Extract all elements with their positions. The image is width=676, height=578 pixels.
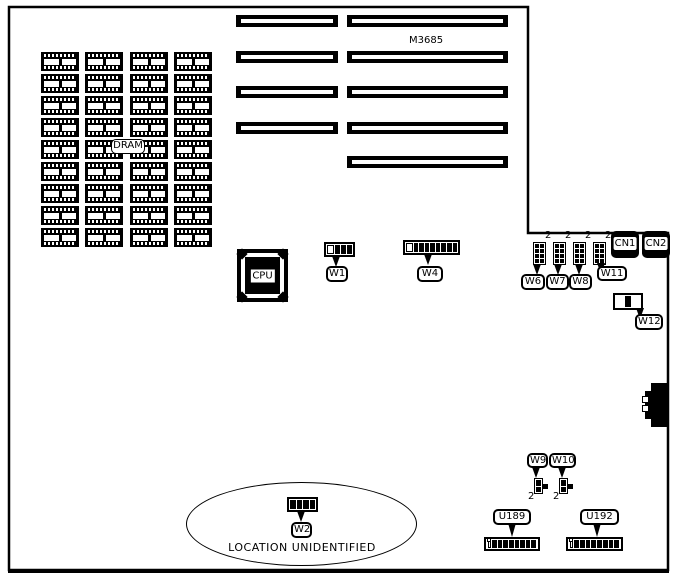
dip-segment [597, 540, 602, 548]
dip-segment [591, 540, 596, 548]
w12-label: W12 [635, 314, 663, 330]
dram-chip [174, 96, 212, 115]
w10-pin2-label: 2 [553, 491, 559, 502]
jumper-w1 [324, 242, 355, 257]
expansion-slot [236, 15, 338, 27]
dram-chip [130, 118, 168, 137]
jumper-pin [535, 254, 539, 258]
dip-segment [603, 540, 608, 548]
jumper-pin [575, 244, 579, 248]
jumper-pin [536, 480, 541, 486]
dram-chip [130, 206, 168, 225]
dip-segment [531, 540, 536, 548]
jumper-pin-open [327, 245, 334, 254]
jumper-pin [580, 254, 584, 258]
dram-chip [85, 228, 123, 247]
jumper-pin [580, 249, 584, 253]
cn2-label: CN2 [645, 237, 668, 250]
jumper-w8 [573, 242, 586, 265]
jumper-pin [341, 245, 346, 254]
expansion-slot [347, 156, 508, 168]
w2-pointer [297, 511, 305, 522]
jumper-pin [575, 249, 579, 253]
dip-segment [580, 540, 585, 548]
jumper-pin [453, 243, 458, 252]
dip-segment [526, 540, 531, 548]
expansion-slot [347, 86, 508, 98]
jumper-pin [595, 254, 599, 258]
cpu-label: CPU [250, 269, 274, 282]
jumper-pin [441, 243, 446, 252]
connector-cn1: CN1 [611, 231, 639, 258]
u192-label: U192 [580, 509, 619, 525]
jumper-w6 [533, 242, 546, 265]
dram-label: DRAM [111, 139, 145, 154]
expansion-slot [236, 51, 338, 63]
cpu-socket: CPU [237, 249, 288, 302]
u189-pin1-marker [487, 538, 491, 542]
dram-chip [85, 118, 123, 137]
jumper-pin [425, 243, 430, 252]
u189-pointer [508, 523, 516, 537]
motherboard-diagram: DRAM M3685 CPU W1 W4 2 2 2 2 W6 W7 W8 W1… [0, 0, 676, 578]
dip-segment [586, 540, 591, 548]
w9-side-pin [543, 484, 548, 489]
w11-label: W11 [597, 266, 627, 281]
jumper-pin [540, 249, 544, 253]
w8-pin2-label: 2 [585, 230, 591, 241]
dram-chip [130, 228, 168, 247]
dram-chip [130, 162, 168, 181]
jumper-pin [447, 243, 452, 252]
dip-segment [520, 540, 525, 548]
jumper-pin [600, 254, 604, 258]
dip-segment [614, 540, 619, 548]
jumper-pin [575, 259, 579, 263]
jumper-pin [290, 500, 296, 509]
jumper-pin [595, 249, 599, 253]
jumper-pin [595, 244, 599, 248]
u192-pointer [593, 523, 601, 537]
jumper-pin [540, 244, 544, 248]
expansion-slot [236, 86, 338, 98]
jumper-pin [555, 259, 559, 263]
jumper-pin [303, 500, 309, 509]
jumper-pin [536, 487, 541, 493]
u192-pin1-marker [569, 538, 573, 542]
dip-segment [492, 540, 497, 548]
w9-label: W9 [527, 453, 548, 468]
dram-chip [130, 52, 168, 71]
w2-label: W2 [291, 522, 312, 538]
dram-chip [130, 74, 168, 93]
jumper-pin [436, 243, 441, 252]
jumper-pin [575, 254, 579, 258]
w10-side-pin [568, 484, 573, 489]
dram-chip [174, 52, 212, 71]
dram-chip [85, 184, 123, 203]
jumper-pin [555, 244, 559, 248]
dram-chip [174, 228, 212, 247]
dram-chip [85, 206, 123, 225]
jumper-pin [555, 249, 559, 253]
connector-cn2: CN2 [642, 231, 670, 258]
dram-chip [41, 162, 79, 181]
jumper-pin [600, 249, 604, 253]
location-unidentified-text: LOCATION UNIDENTIFIED [222, 541, 382, 554]
dram-chip [174, 162, 212, 181]
dram-chip [174, 206, 212, 225]
w8-label: W8 [569, 274, 592, 290]
dram-chip [85, 96, 123, 115]
chip-u192 [566, 537, 623, 551]
dram-chip [174, 140, 212, 159]
dram-chip [41, 96, 79, 115]
jumper-pin [540, 259, 544, 263]
jumper-w10 [559, 478, 568, 494]
dram-chip [41, 52, 79, 71]
dram-chip [41, 140, 79, 159]
jumper-w11 [593, 242, 606, 265]
jumper-w4 [403, 240, 460, 255]
dram-chip [174, 74, 212, 93]
w6-pin2-label: 2 [545, 230, 551, 241]
dip-segment [515, 540, 520, 548]
dram-chip [41, 118, 79, 137]
dram-chip [130, 184, 168, 203]
w4-pointer [424, 254, 432, 265]
jumper-pin [535, 259, 539, 263]
w9-pin2-label: 2 [528, 491, 534, 502]
keyboard-connector-pin [642, 396, 649, 403]
dip-segment [509, 540, 514, 548]
w10-pointer [558, 467, 566, 478]
dip-segment [498, 540, 503, 548]
dram-chip [41, 206, 79, 225]
jumper-w9 [534, 478, 543, 494]
dram-chip [130, 96, 168, 115]
jumper-pin [414, 243, 419, 252]
dram-chip [174, 118, 212, 137]
dip-segment [503, 540, 508, 548]
w7-pin2-label: 2 [565, 230, 571, 241]
dram-chip [41, 228, 79, 247]
dram-chip [85, 74, 123, 93]
jumper-w7 [553, 242, 566, 265]
jumper-pin [580, 259, 584, 263]
jumper-pin [347, 245, 352, 254]
jumper-pin [560, 259, 564, 263]
dram-chip [41, 184, 79, 203]
expansion-slot [236, 122, 338, 134]
jumper-pin [555, 254, 559, 258]
jumper-pin [560, 254, 564, 258]
cn1-label: CN1 [614, 237, 637, 250]
dram-chip [85, 52, 123, 71]
dip-segment [574, 540, 579, 548]
jumper-pin [535, 249, 539, 253]
w12-switch-bar [625, 296, 631, 307]
w7-label: W7 [546, 274, 569, 290]
jumper-pin [419, 243, 424, 252]
expansion-slot [347, 122, 508, 134]
w1-label: W1 [326, 266, 348, 282]
jumper-pin [560, 244, 564, 248]
w4-label: W4 [417, 266, 443, 282]
expansion-slot [347, 51, 508, 63]
jumper-pin [540, 254, 544, 258]
jumper-pin [430, 243, 435, 252]
u189-label: U189 [493, 509, 531, 525]
jumper-pin [535, 244, 539, 248]
w9-pointer [532, 467, 540, 478]
jumper-pin [297, 500, 303, 509]
jumper-pin [600, 244, 604, 248]
w10-label: W10 [549, 453, 576, 468]
keyboard-connector-pin [642, 405, 649, 412]
board-model-label: M3685 [409, 35, 443, 46]
chip-u189 [484, 537, 540, 551]
dram-chip [85, 162, 123, 181]
expansion-slot [347, 15, 508, 27]
dip-segment [609, 540, 614, 548]
jumper-pin [560, 249, 564, 253]
jumper-pin [310, 500, 316, 509]
jumper-pin [580, 244, 584, 248]
jumper-pin [561, 480, 566, 486]
jumper-w2 [287, 497, 318, 512]
dram-chip [174, 184, 212, 203]
jumper-pin-open [406, 243, 413, 252]
jumper-pin [561, 487, 566, 493]
w6-label: W6 [521, 274, 545, 290]
jumper-pin [335, 245, 340, 254]
w11-pin2-label: 2 [605, 230, 611, 241]
dram-chip [41, 74, 79, 93]
